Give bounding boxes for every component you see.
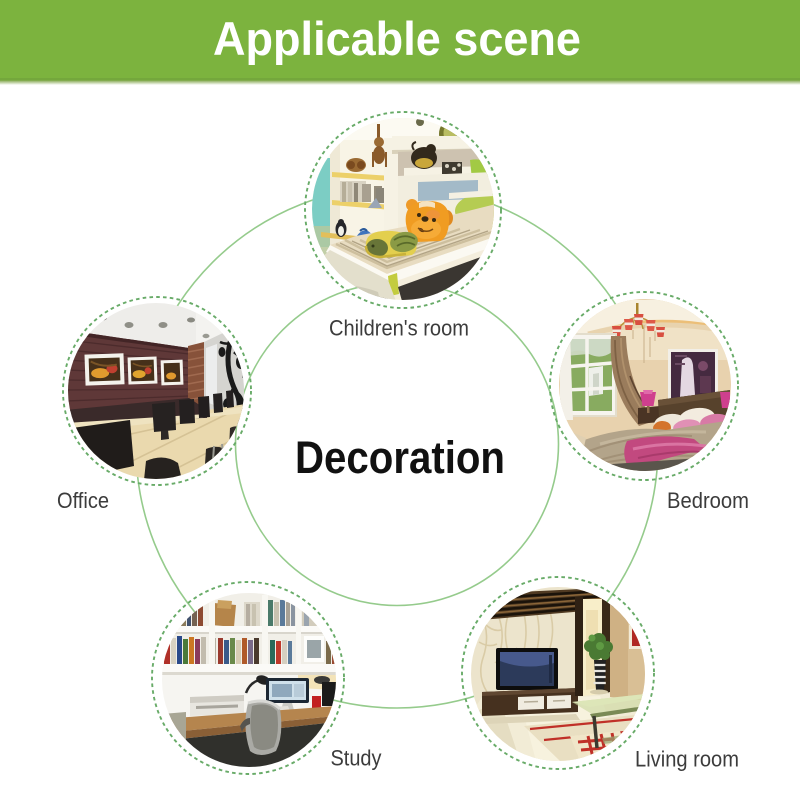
svg-text:Decoration: Decoration: [295, 432, 505, 483]
svg-text:Children's room: Children's room: [329, 316, 469, 341]
svg-text:Office: Office: [57, 488, 109, 513]
svg-text:Applicable scene: Applicable scene: [213, 12, 581, 65]
svg-text:Study: Study: [331, 746, 382, 771]
svg-text:Bedroom: Bedroom: [667, 488, 749, 513]
svg-text:Living room: Living room: [635, 746, 739, 771]
